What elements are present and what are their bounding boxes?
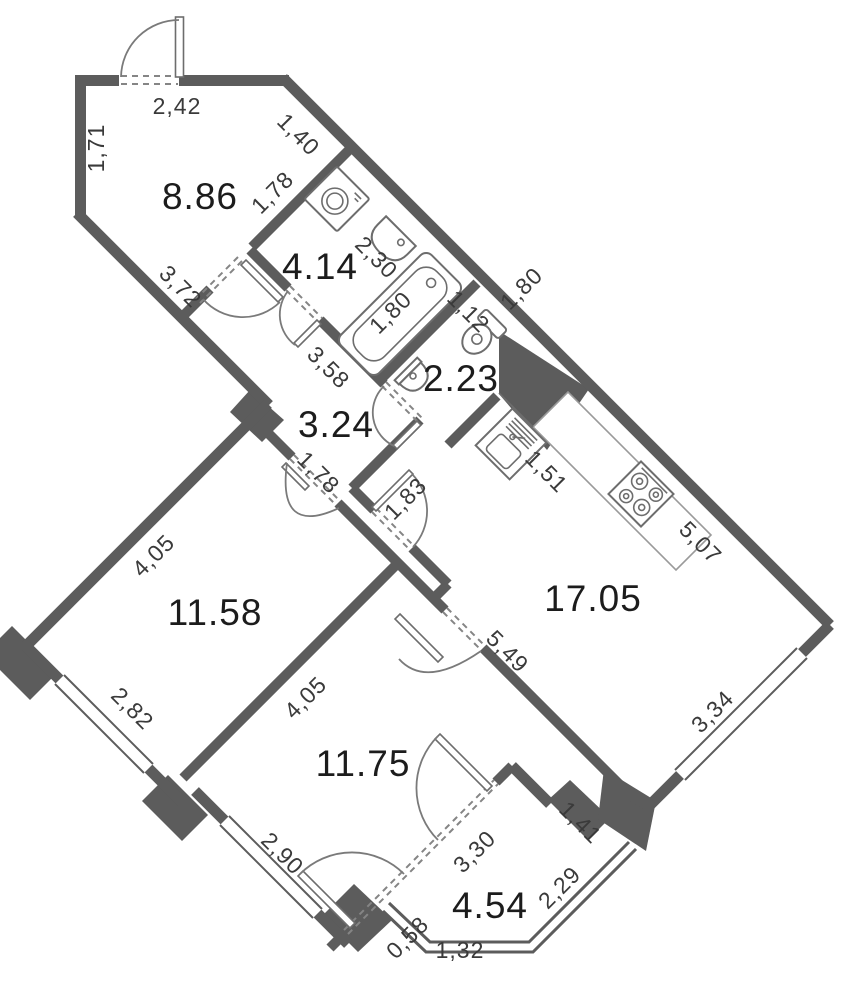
dim-wc-side: 1,80 bbox=[495, 262, 548, 315]
room-label-hall: 3.24 bbox=[298, 404, 374, 445]
door-bathroom bbox=[280, 286, 322, 347]
room-label-balcony: 4.54 bbox=[452, 885, 528, 926]
entry-door bbox=[121, 17, 184, 84]
dim-balcony-door: 3,30 bbox=[448, 825, 501, 878]
floor-plan-page: 8.86 4.14 2.23 3.24 17.05 11.58 11.75 4.… bbox=[0, 0, 842, 1000]
dim-balcony-bottom: 1,32 bbox=[436, 937, 485, 963]
room-label-wc: 2.23 bbox=[423, 358, 499, 399]
mid-facade-pier bbox=[142, 775, 208, 841]
room-label-bathroom: 4.14 bbox=[282, 246, 358, 287]
dim-hall-kitchen: 1,83 bbox=[379, 472, 432, 525]
door-kitchen-bedroom2 bbox=[395, 608, 485, 672]
washing-machine-icon bbox=[304, 166, 369, 231]
room-label-bedroom1: 11.58 bbox=[168, 592, 263, 633]
floor-plan: 8.86 4.14 2.23 3.24 17.05 11.58 11.75 4.… bbox=[0, 0, 842, 1000]
walls bbox=[26, 75, 830, 948]
dim-hall-bed1-door: 1,78 bbox=[292, 446, 345, 499]
room-label-bedroom2: 11.75 bbox=[316, 743, 411, 784]
room-label-entry: 8.86 bbox=[162, 176, 238, 217]
dim-left: 1,71 bbox=[83, 124, 109, 173]
room-label-kitchen-living: 17.05 bbox=[544, 578, 642, 619]
dim-top: 2,42 bbox=[153, 93, 202, 119]
